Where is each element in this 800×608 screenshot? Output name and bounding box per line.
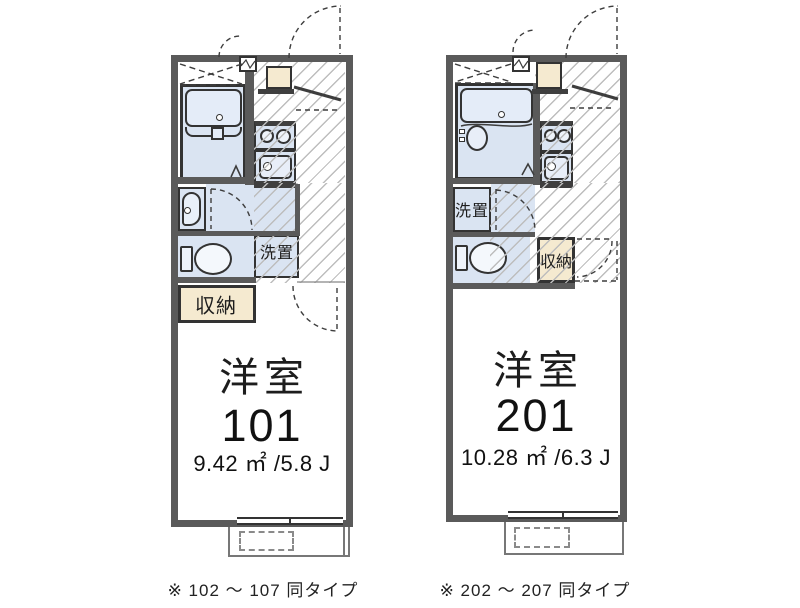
entry-door-swing: [566, 6, 618, 58]
bath-bottom-wall: [453, 178, 537, 184]
storage-label: 収納: [540, 248, 572, 272]
toilet-top-wall: [453, 232, 535, 237]
water-heater-box: [266, 66, 292, 89]
toilet-top-wall: [178, 231, 300, 236]
storage-label: 収納: [195, 290, 237, 319]
bath-side-wall: [245, 62, 254, 185]
washer-space-label: 洗置: [260, 239, 294, 263]
toilet-bottom-wall: [178, 277, 256, 283]
bath-side-wall: [533, 83, 540, 185]
balcony-divider: [343, 527, 345, 555]
entry-door-swing: [289, 6, 341, 58]
washroom-wall: [295, 184, 300, 233]
meter-box: [239, 56, 257, 72]
meter-box: [512, 56, 530, 72]
balcony: [228, 527, 350, 557]
room-area-label: 10.28 ㎡ /6.3 J: [461, 440, 611, 472]
room-type-label: 洋室: [219, 345, 309, 403]
unit-number: 101: [221, 400, 302, 452]
window-center-tick: [562, 511, 564, 519]
balcony-inner-dashed: [239, 531, 294, 551]
washer-space-label: 洗置: [455, 197, 489, 221]
room-type-label: 洋室: [493, 338, 583, 396]
meter-door-swing: [513, 30, 535, 52]
bath-bottom-wall: [178, 177, 254, 184]
unit-number: 201: [495, 390, 576, 442]
heater-shelf-wall: [532, 89, 568, 94]
floorplan-canvas: 洗置 収納 洋室 101 9.42 ㎡ /5.8 J ※ 102 〜 107 同…: [0, 0, 800, 608]
meter-door-swing: [219, 36, 240, 57]
balcony: [504, 522, 624, 555]
room-area-label: 9.42 ㎡ /5.8 J: [193, 446, 330, 478]
plan-linework: [0, 0, 800, 608]
type-caption: ※ 202 〜 207 同タイプ: [440, 576, 631, 601]
balcony-inner-dashed: [514, 527, 570, 548]
water-heater-box: [536, 62, 562, 89]
heater-shelf-wall: [258, 89, 294, 94]
type-caption: ※ 102 〜 107 同タイプ: [168, 576, 359, 601]
window-center-tick: [289, 517, 291, 525]
room-top-wall: [453, 283, 575, 289]
